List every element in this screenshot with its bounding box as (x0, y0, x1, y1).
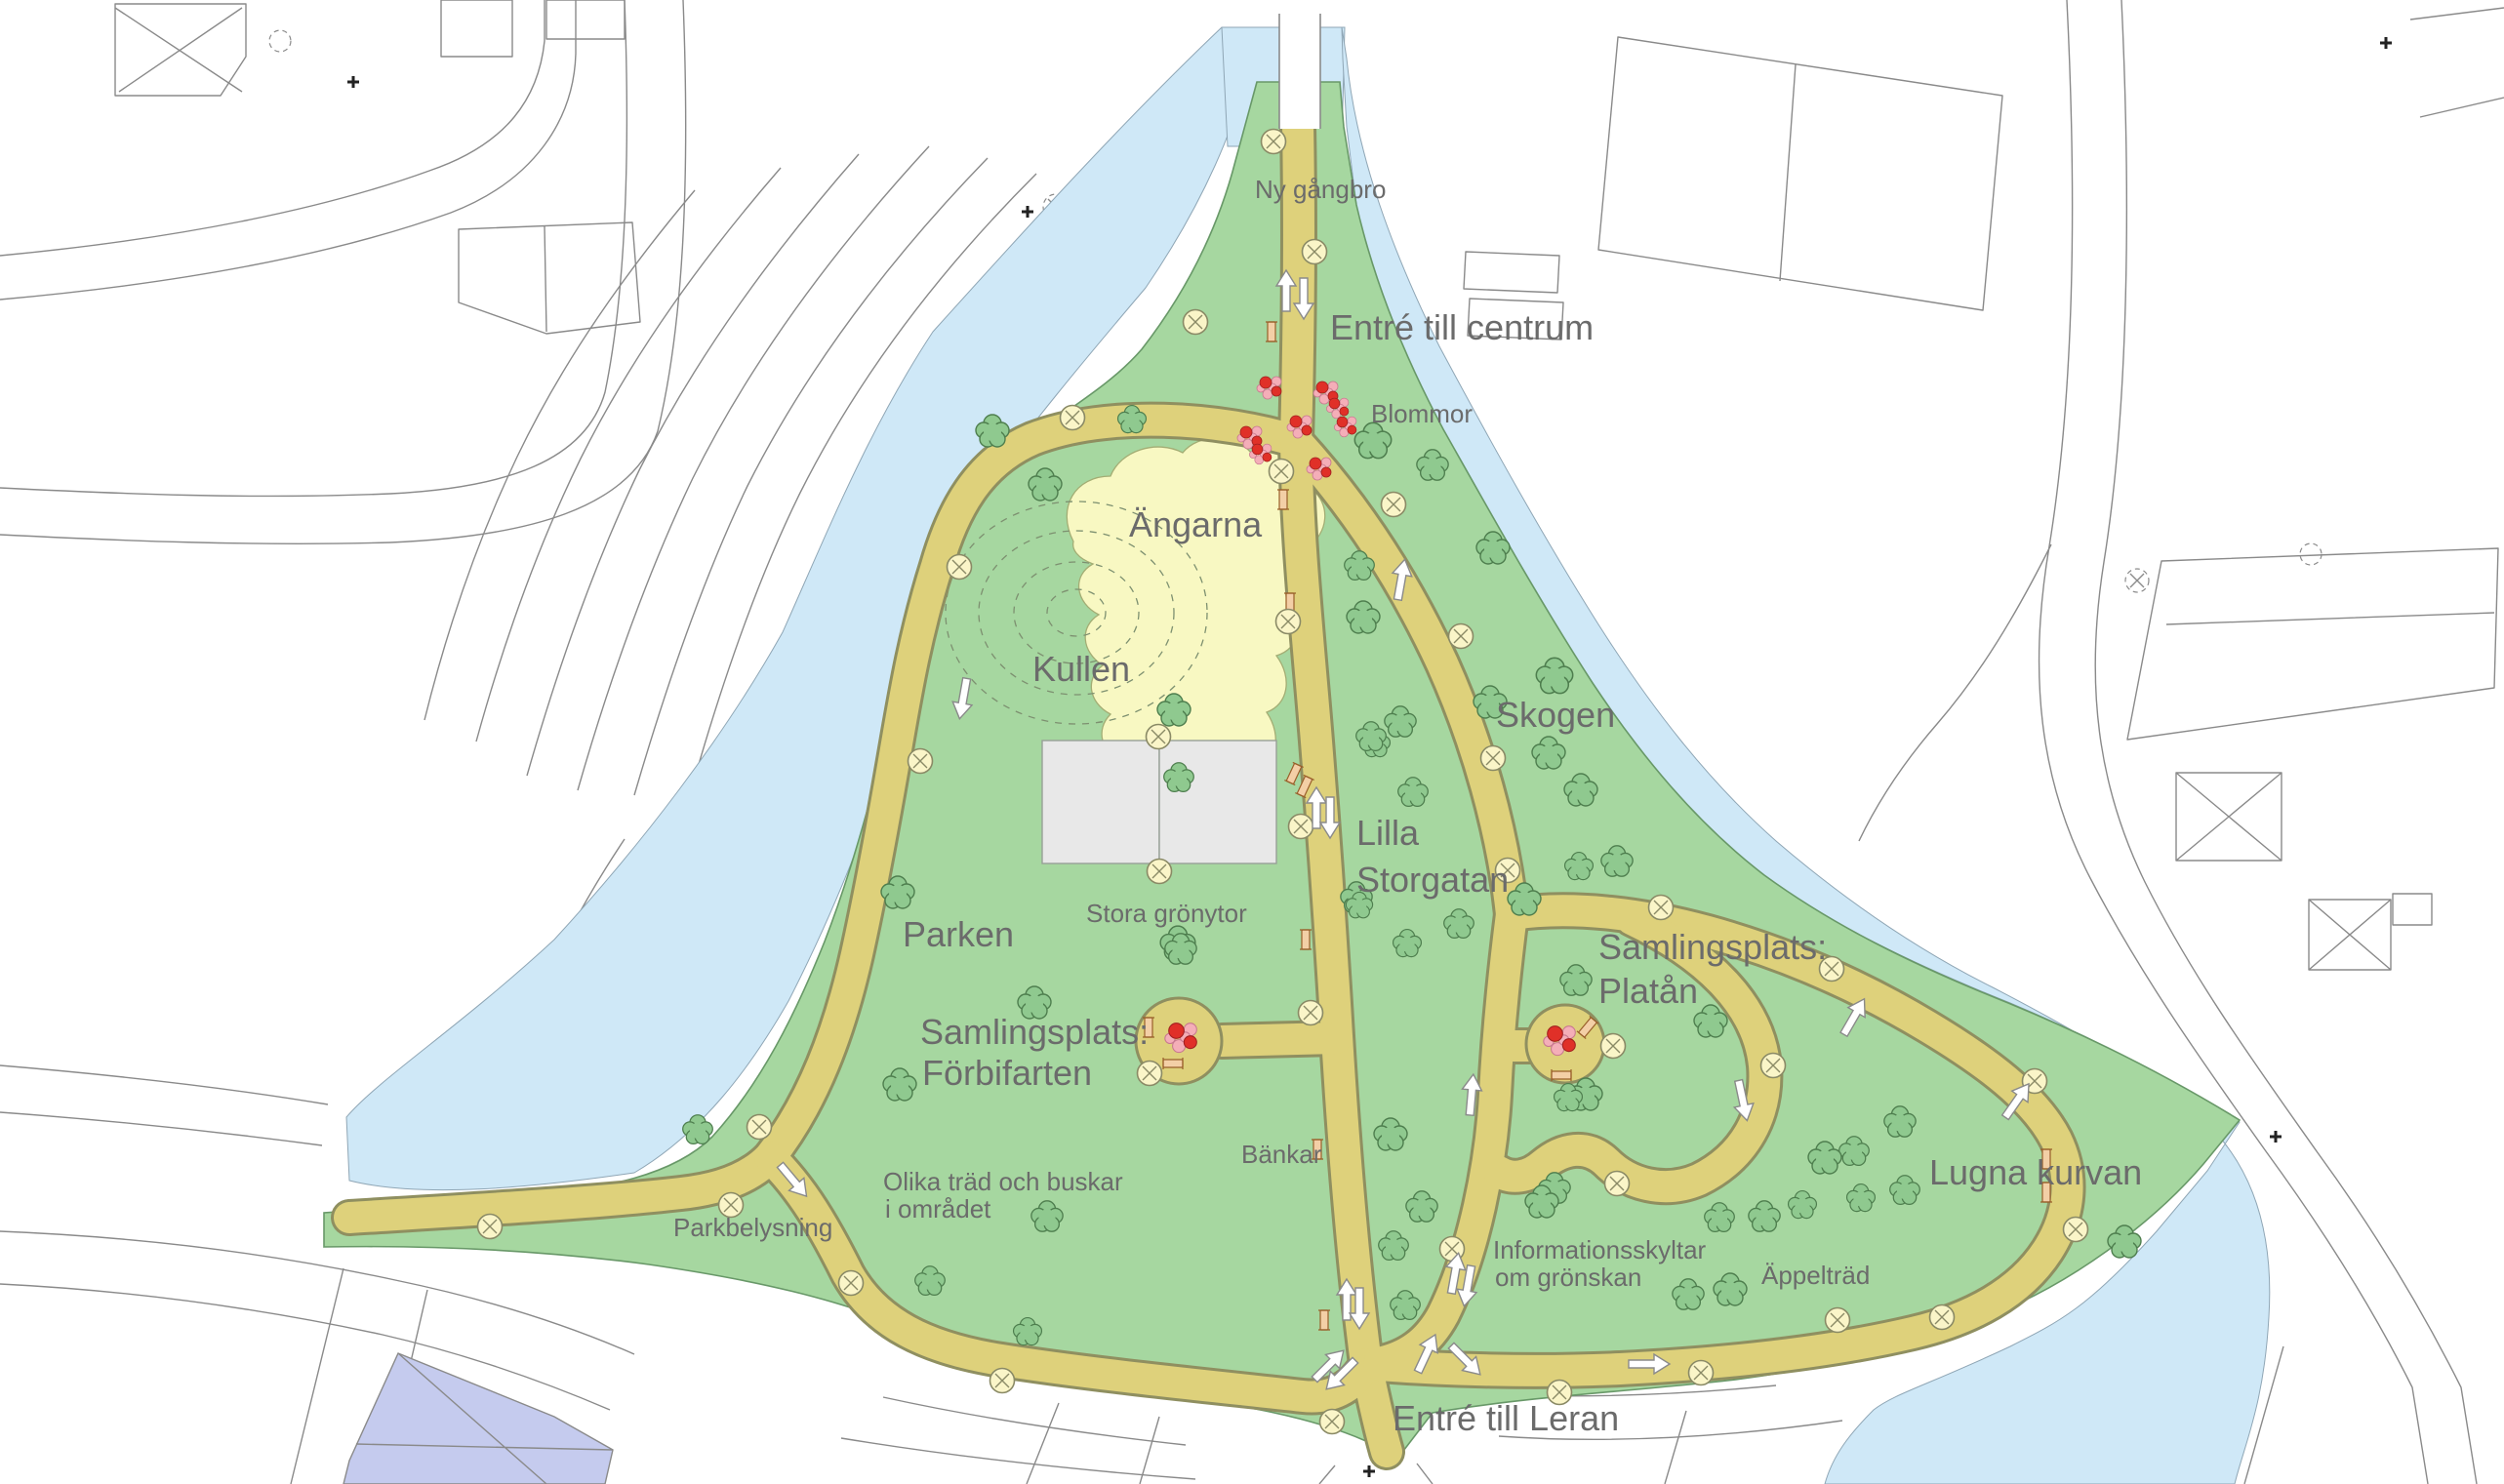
park-light-icon (1320, 1410, 1345, 1434)
building-outline (115, 4, 246, 96)
map-canvas: Ny gångbro Entré till centrum Blommor Än… (0, 0, 2504, 1484)
bench-icon (1318, 1310, 1330, 1330)
park-light-icon (1061, 406, 1085, 430)
building-outline (2309, 894, 2432, 970)
park-light-icon (1449, 624, 1474, 649)
label-parken: Parken (903, 914, 1014, 954)
park-light-icon (1605, 1172, 1630, 1196)
park-light-icon (1147, 725, 1171, 749)
utility-circle-icon (2300, 543, 2322, 565)
building-outline (2176, 773, 2282, 861)
park-light-icon (990, 1369, 1015, 1393)
road-line (0, 0, 576, 300)
road-line (0, 1065, 328, 1145)
road-line (0, 0, 626, 496)
purple-building (343, 1353, 613, 1484)
park-light-icon (478, 1215, 503, 1239)
contour-line (424, 190, 695, 720)
label-samlingsplats-forbifarten-1: Samlingsplats: (920, 1012, 1149, 1052)
park-light-icon (747, 1115, 772, 1140)
park-light-icon (1930, 1305, 1955, 1330)
park-light-icon (839, 1271, 864, 1296)
park-light-icon (1276, 610, 1301, 634)
bench-icon (1552, 1069, 1571, 1081)
road-line (2410, 8, 2504, 117)
utility-circle-icon (269, 30, 291, 52)
bench-icon (1163, 1058, 1183, 1069)
road-line (0, 0, 545, 256)
park-light-icon (1184, 310, 1208, 335)
label-parkbelysning: Parkbelysning (673, 1213, 832, 1242)
label-informationsskyltar-2: om grönskan (1495, 1263, 1641, 1292)
label-olika-trad-2: i området (885, 1194, 991, 1223)
cross-marker (1022, 206, 1033, 218)
label-bankar: Bänkar (1241, 1140, 1322, 1169)
label-lugna-kurvan: Lugna kurvan (1929, 1152, 2142, 1192)
park-light-icon (2064, 1218, 2088, 1242)
label-samlingsplats-forbifarten-2: Förbifarten (922, 1053, 1092, 1093)
road-line (1859, 544, 2051, 841)
contour-line (476, 168, 781, 742)
bench-icon (1277, 490, 1289, 509)
road-line (841, 1397, 1195, 1479)
building-outline (1598, 37, 2002, 310)
label-samlingsplats-platan-1: Samlingsplats: (1598, 927, 1827, 967)
park-plan-map: Ny gångbro Entré till centrum Blommor Än… (0, 0, 2504, 1484)
park-light-icon (948, 555, 972, 580)
label-skogen: Skogen (1496, 695, 1615, 735)
utility-circle-icon (2130, 574, 2144, 587)
gray-surface (1159, 741, 1276, 863)
park-light-icon (1299, 1001, 1323, 1025)
park-light-icon (1649, 896, 1674, 920)
label-kullen: Kullen (1032, 649, 1130, 689)
park-light-icon (1262, 130, 1286, 154)
cross-marker (1363, 1465, 1375, 1477)
label-lilla-storgatan-1: Lilla (1356, 813, 1420, 853)
label-appeltrad: Äppelträd (1761, 1261, 1870, 1290)
cross-marker (2380, 37, 2392, 49)
park-light-icon (1689, 1361, 1714, 1385)
label-ny-gangbro: Ny gångbro (1255, 175, 1386, 204)
label-blommor: Blommor (1371, 399, 1473, 428)
cross-marker (347, 76, 359, 88)
park-light-icon (1382, 493, 1406, 517)
park-light-icon (1303, 240, 1327, 264)
road-line (1027, 1403, 1159, 1484)
gray-surface (1042, 741, 1159, 863)
park-light-icon (1289, 815, 1313, 839)
park-light-icon (1270, 460, 1294, 484)
building-outline (2127, 548, 2498, 740)
label-informationsskyltar-1: Informationsskyltar (1493, 1235, 1707, 1264)
park-light-icon (1148, 860, 1172, 884)
road-line (0, 1284, 610, 1410)
park-light-icon (1138, 1062, 1162, 1086)
building-outline (459, 222, 640, 334)
park-light-icon (1481, 746, 1506, 771)
gray-surfaces (1042, 741, 1276, 863)
park-light-icon (1826, 1308, 1850, 1333)
building-outline (441, 0, 625, 57)
label-olika-trad-1: Olika träd och buskar (883, 1167, 1123, 1196)
bench-icon (1300, 930, 1312, 949)
park-light-icon (909, 749, 933, 774)
label-samlingsplats-platan-2: Platån (1598, 971, 1698, 1011)
label-entre-leran: Entré till Leran (1393, 1398, 1619, 1438)
park-light-icon (1761, 1054, 1786, 1078)
label-stora-gronytor: Stora grönytor (1086, 899, 1247, 928)
bench-icon (1266, 322, 1277, 341)
label-lilla-storgatan-2: Storgatan (1356, 860, 1509, 900)
new-footbridge (1279, 14, 1320, 129)
road-line (0, 0, 686, 543)
cross-marker (2270, 1131, 2282, 1143)
label-entre-centrum: Entré till centrum (1330, 307, 1594, 347)
label-angarna: Ängarna (1129, 504, 1263, 544)
park-light-icon (1601, 1034, 1626, 1059)
